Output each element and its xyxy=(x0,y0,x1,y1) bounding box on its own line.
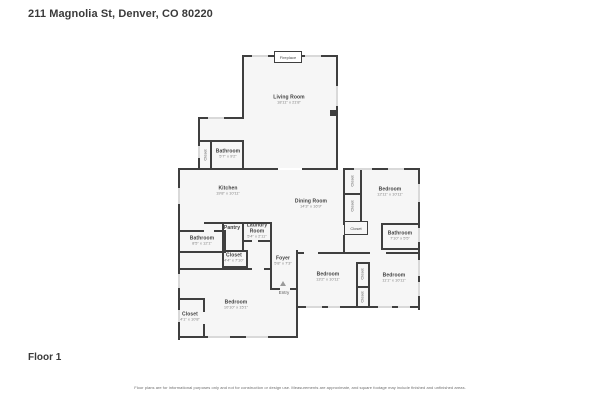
wall-segment xyxy=(270,240,272,290)
window xyxy=(208,336,230,338)
entry-arrow-icon xyxy=(280,281,286,286)
window xyxy=(328,306,340,308)
window xyxy=(178,274,180,288)
room-label-bathroom-upper: Bathroom 5'7" x 9'2" xyxy=(216,149,240,160)
wall-segment xyxy=(222,266,248,268)
wall-segment xyxy=(180,298,204,300)
room-label-bathroom-right: Bathroom 7'10" x 5'5" xyxy=(388,231,412,242)
room-dims: 4'1" x 10'8" xyxy=(180,318,200,323)
wall-segment xyxy=(242,140,244,170)
room-label-foyer: Foyer 5'8" x 7'3" xyxy=(274,256,292,267)
wall-segment xyxy=(290,288,298,290)
room-label-living-room: Living Room 18'11" x 21'8" xyxy=(273,95,304,106)
wall-segment xyxy=(178,230,204,232)
wall-segment xyxy=(386,252,420,254)
fireplace-box: Fireplace xyxy=(274,51,302,63)
disclaimer-text: Floor plans are for informational purpos… xyxy=(0,385,600,390)
room-dims: 8'5" x 12'1" xyxy=(190,242,214,247)
room-dims: 10'10" x 15'1" xyxy=(224,306,248,311)
entry-label: Entry xyxy=(279,290,290,295)
closet-label-vertical: Closet xyxy=(203,149,208,160)
closet-label-vertical: Closet xyxy=(350,175,355,186)
room-dims: 11'1" x 10'11" xyxy=(382,279,406,284)
window xyxy=(208,117,224,119)
wall-segment xyxy=(336,55,338,170)
wall-segment xyxy=(210,142,212,170)
wall-segment xyxy=(381,248,420,250)
window xyxy=(418,228,420,242)
wall-segment xyxy=(360,168,362,223)
wall-segment xyxy=(178,251,226,253)
wall-segment xyxy=(356,286,368,288)
room-label-bedroom-bottomright: Bedroom 11'1" x 10'11" xyxy=(382,273,406,284)
floor-label: Floor 1 xyxy=(28,352,61,363)
wall-segment xyxy=(264,268,272,270)
wall-segment xyxy=(178,336,298,338)
wall-segment xyxy=(302,168,338,170)
wall-segment xyxy=(198,140,244,142)
room-dims: 18'11" x 21'8" xyxy=(273,101,304,106)
room-label-pantry: Pantry xyxy=(224,225,240,231)
room-label-bathroom-midleft: Bathroom 8'5" x 12'1" xyxy=(190,236,214,247)
wall-segment xyxy=(242,240,252,242)
room-label-bedroom-bottomleft: Bedroom 10'10" x 15'1" xyxy=(224,300,248,311)
fireplace-label: Fireplace xyxy=(280,55,296,60)
wall-segment xyxy=(343,168,345,225)
window xyxy=(418,260,420,276)
room-dims: 14'3" x 16'9" xyxy=(295,205,327,210)
wall-segment xyxy=(178,268,252,270)
room-label-kitchen: Kitchen 19'8" x 10'11" xyxy=(216,186,240,197)
room-label-closet-bottomleft: Closet 4'1" x 10'8" xyxy=(180,312,200,323)
wall-segment xyxy=(178,168,278,170)
wall-segment xyxy=(368,262,370,308)
wall-segment xyxy=(298,252,304,254)
window xyxy=(198,146,200,158)
wall-segment xyxy=(258,240,272,242)
window xyxy=(388,168,404,170)
wall-segment xyxy=(203,298,205,312)
window xyxy=(252,55,268,57)
window xyxy=(336,86,338,106)
wall-segment xyxy=(381,223,383,250)
window xyxy=(306,306,322,308)
window xyxy=(418,282,420,296)
room-label-dining-room: Dining Room 14'3" x 16'9" xyxy=(295,199,327,210)
wall-segment xyxy=(343,193,360,195)
closet-box: Closet xyxy=(344,221,368,235)
wall-segment xyxy=(382,223,420,225)
room-name: Pantry xyxy=(224,225,240,231)
room-label-closet-mid: Closet 4'4" x 7'10" xyxy=(224,253,244,264)
room-label-bedroom-bottommid: Bedroom 13'2" x 10'11" xyxy=(316,272,340,283)
window xyxy=(378,306,392,308)
room-fill xyxy=(242,57,336,168)
room-dims: 13'2" x 10'11" xyxy=(316,278,340,283)
address-title: 211 Magnolia St, Denver, CO 80220 xyxy=(28,8,213,20)
room-dims: 5'4" x 2'11" xyxy=(242,235,272,240)
wall-segment xyxy=(203,324,205,338)
wall-segment xyxy=(343,235,345,252)
room-dims: 19'8" x 10'11" xyxy=(216,192,240,197)
window xyxy=(178,188,180,204)
wall-segment xyxy=(356,262,368,264)
room-dims: 12'11" x 10'11" xyxy=(377,193,403,198)
floor-plan-page: 211 Magnolia St, Denver, CO 80220 xyxy=(0,0,600,400)
room-dims: 7'10" x 5'5" xyxy=(388,237,412,242)
closet-label-vertical: Closet xyxy=(360,291,365,302)
closet-label-vertical: Closet xyxy=(350,200,355,211)
closet-label-vertical: Closet xyxy=(360,268,365,279)
window xyxy=(418,184,420,202)
window xyxy=(305,55,321,57)
room-dims: 4'4" x 7'10" xyxy=(224,259,244,264)
room-dims: 5'7" x 9'2" xyxy=(216,155,240,160)
room-dims: 5'8" x 7'3" xyxy=(274,262,292,267)
room-label-laundry: Laundry Room 5'4" x 2'11" xyxy=(242,223,272,240)
wall-segment xyxy=(242,55,244,119)
wall-segment xyxy=(198,117,200,170)
closet-label: Closet xyxy=(350,226,361,231)
room-label-bedroom-topright: Bedroom 12'11" x 10'11" xyxy=(377,187,403,198)
door-stop xyxy=(330,110,336,116)
wall-segment xyxy=(318,252,370,254)
window xyxy=(398,306,410,308)
window xyxy=(354,168,372,170)
wall-segment xyxy=(224,230,226,253)
wall-segment xyxy=(296,250,298,338)
window xyxy=(246,336,268,338)
wall-segment xyxy=(356,262,358,308)
